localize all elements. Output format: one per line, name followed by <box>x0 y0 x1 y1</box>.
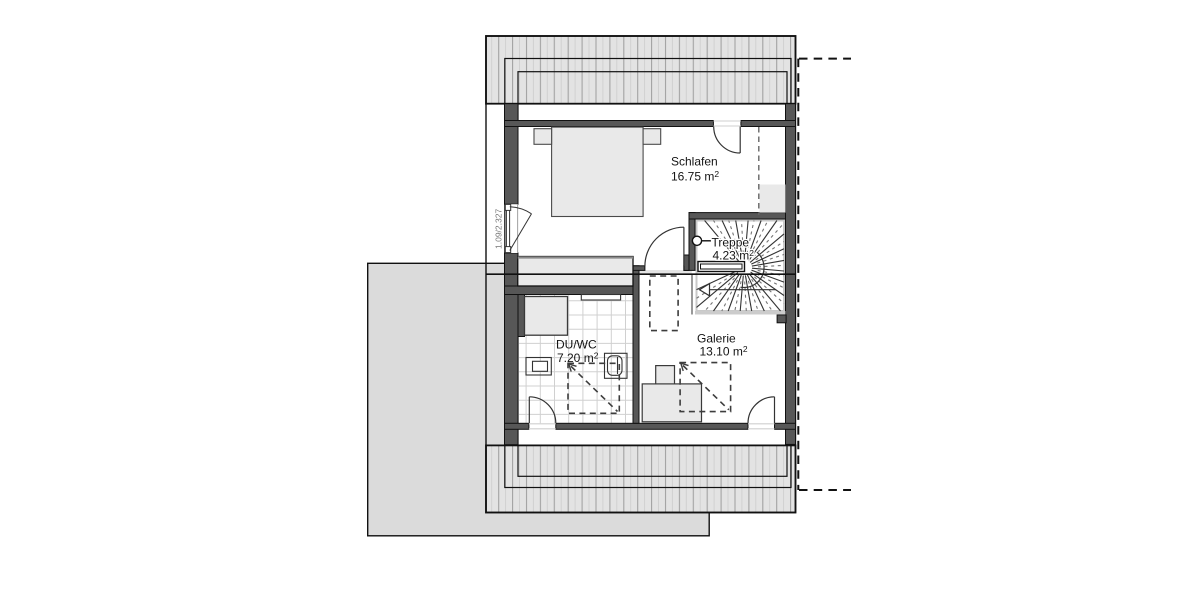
svg-text:13.10 m2: 13.10 m2 <box>700 344 748 359</box>
svg-text:Treppe: Treppe <box>712 236 750 250</box>
svg-text:Schlafen: Schlafen <box>671 155 718 169</box>
svg-text:7.20 m2: 7.20 m2 <box>557 351 599 366</box>
svg-text:16.75 m2: 16.75 m2 <box>671 169 719 184</box>
svg-text:Galerie: Galerie <box>697 332 736 346</box>
svg-text:1.09/2.327: 1.09/2.327 <box>494 209 504 249</box>
svg-text:DU/WC: DU/WC <box>556 338 597 352</box>
svg-text:4.23 m2: 4.23 m2 <box>713 248 755 263</box>
